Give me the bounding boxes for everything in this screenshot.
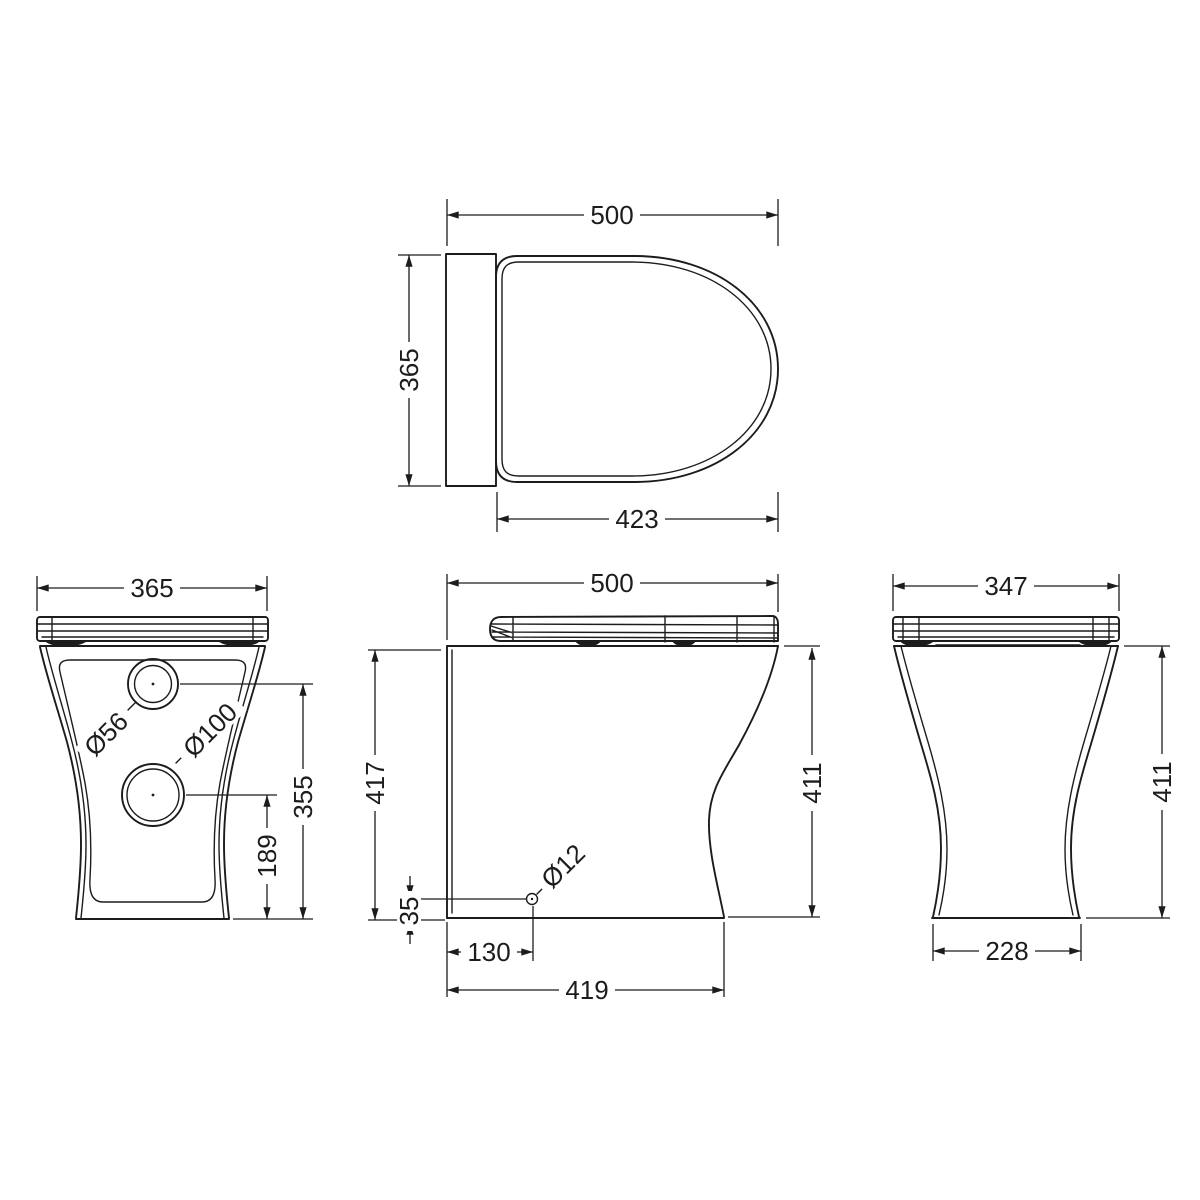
outlet-hole [122,764,184,826]
base-depth-label: 419 [565,975,608,1005]
front-view: 347 411 228 [893,571,1177,966]
side-height-label: 411 [797,762,827,803]
dim-side-height: 411 [728,646,827,917]
fixing-hole [527,894,538,905]
back-width-label: 365 [130,573,173,603]
plan-depth-label: 365 [394,348,424,391]
side-seat-profile [490,616,778,646]
plan-pan-back [446,254,496,486]
front-base-width-label: 228 [985,936,1028,966]
side-pan-body [447,646,778,918]
inlet-height-label: 355 [288,775,318,818]
front-width-label: 347 [984,571,1027,601]
fixing-inset-label: 130 [467,937,510,967]
dim-front-width: 347 [893,571,1119,611]
side-pan-front-curve [709,646,778,917]
side-depth-label: 500 [590,568,633,598]
dim-plan-width: 500 [447,199,778,246]
plan-seat-inner [502,262,771,476]
front-height-label: 411 [1147,761,1177,802]
front-seat-profile [893,617,1119,646]
label-outlet-dia: Ø100 [171,691,249,769]
back-pan-body [40,646,265,919]
dim-front-base-width: 228 [933,924,1081,966]
dim-fixing-inset: 130 [447,906,533,967]
technical-drawing-page: 500 365 423 [0,0,1200,1200]
dim-back-width: 365 [37,573,267,611]
back-seat-profile [37,617,268,646]
dim-plan-seat-length: 423 [497,492,778,534]
toilet-dimension-drawing: 500 365 423 [0,0,1200,1200]
back-pan-inner-panel [59,660,245,902]
outlet-height-label: 189 [252,834,282,877]
side-overall-height-label: 417 [360,761,390,804]
inlet-hole [128,659,178,709]
fixing-height-label: 35 [394,897,424,926]
back-view: Ø56 Ø100 365 355 [37,573,318,919]
dim-plan-depth: 365 [394,255,441,486]
front-pan-body [894,646,1118,918]
label-fixing-dia: Ø12 [530,833,595,898]
dim-side-overall-height: 417 [360,650,445,920]
plan-seat-outer [496,256,778,482]
plan-view: 500 365 423 [394,199,778,534]
plan-seat-length-label: 423 [615,504,658,534]
plan-width-label: 500 [590,200,633,230]
dim-fixing-height: 35 [394,876,527,944]
dim-side-depth: 500 [447,568,778,640]
side-view: Ø12 500 417 411 [360,568,827,1005]
dim-back-outlet-height: 189 [186,795,282,919]
label-inlet-dia: Ø56 [73,701,139,767]
